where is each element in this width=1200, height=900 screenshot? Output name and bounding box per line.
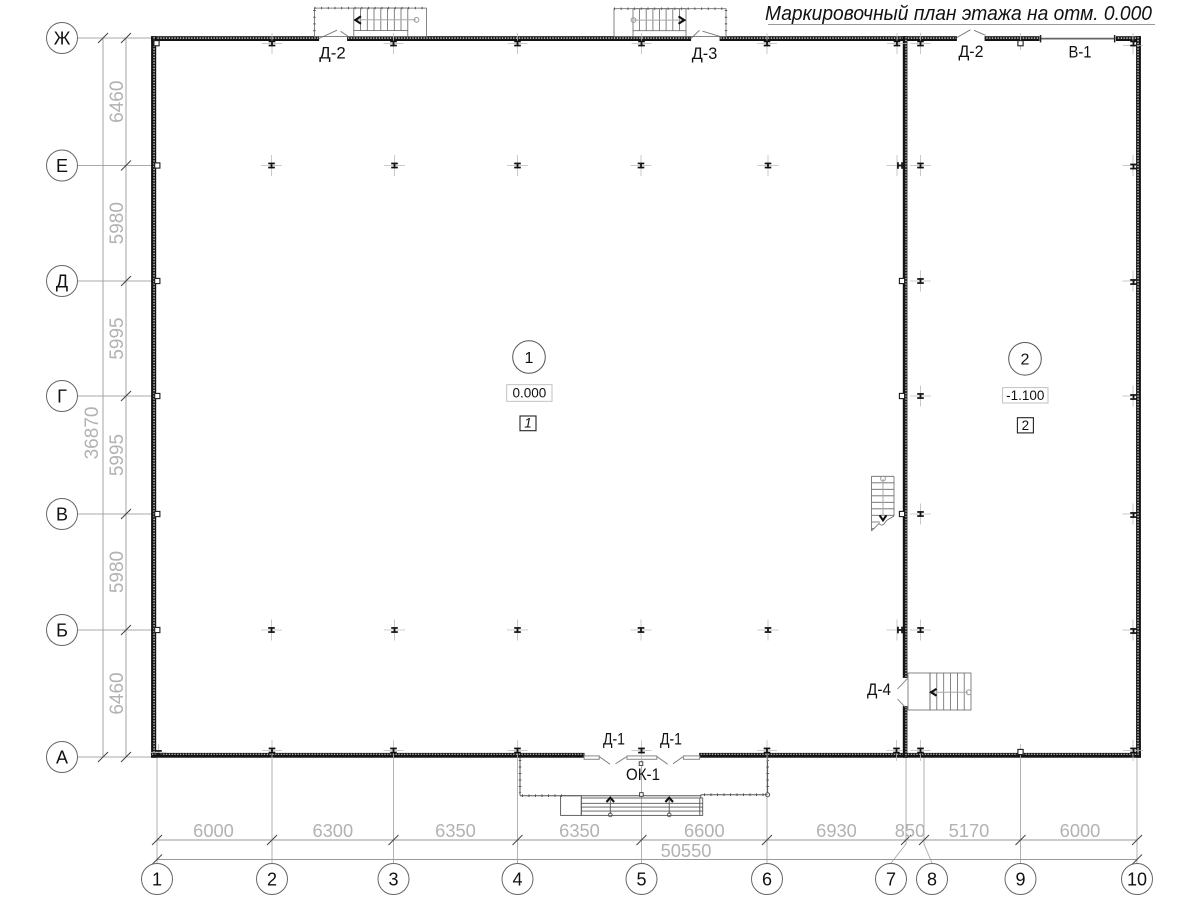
svg-text:5980: 5980 [107,551,128,593]
svg-text:6000: 6000 [1060,820,1101,841]
svg-text:3: 3 [388,870,398,890]
svg-text:Г: Г [57,387,67,407]
svg-text:-1.100: -1.100 [1006,388,1044,403]
svg-text:Б: Б [56,621,68,641]
svg-text:6930: 6930 [816,820,857,841]
svg-text:6000: 6000 [193,820,234,841]
svg-text:ОК-1: ОК-1 [626,765,660,784]
svg-text:850: 850 [895,820,926,841]
svg-text:Д-2: Д-2 [959,43,984,61]
svg-text:5995: 5995 [107,434,128,476]
svg-text:Д: Д [56,272,68,292]
svg-text:Е: Е [56,156,68,176]
svg-text:5980: 5980 [107,202,128,244]
svg-text:Д-3: Д-3 [692,44,718,63]
svg-text:5170: 5170 [949,820,990,841]
svg-text:0.000: 0.000 [513,386,547,401]
svg-text:6350: 6350 [435,820,476,841]
svg-text:8: 8 [927,870,937,890]
svg-text:36870: 36870 [82,407,103,460]
svg-text:5995: 5995 [107,317,128,359]
svg-text:6300: 6300 [312,820,353,841]
svg-text:9: 9 [1015,870,1025,890]
svg-text:2: 2 [1021,352,1030,369]
svg-text:4: 4 [512,870,522,890]
svg-text:В: В [56,505,68,525]
svg-text:5: 5 [636,870,646,890]
svg-text:6460: 6460 [107,672,128,714]
svg-text:Маркировочный план этажа на от: Маркировочный план этажа на отм. 0.000 [765,2,1153,25]
svg-text:10: 10 [1127,870,1147,890]
svg-text:1: 1 [524,416,532,431]
svg-text:50550: 50550 [661,840,712,861]
svg-text:6460: 6460 [107,81,128,123]
svg-text:1: 1 [152,870,162,890]
svg-text:1: 1 [525,350,534,367]
svg-text:2: 2 [267,870,277,890]
svg-text:6600: 6600 [684,820,725,841]
svg-text:Д-1: Д-1 [660,731,682,749]
svg-text:6: 6 [762,870,772,890]
svg-text:6350: 6350 [559,820,600,841]
svg-text:Д-2: Д-2 [319,44,345,63]
svg-text:2: 2 [1022,418,1030,433]
svg-text:Ж: Ж [54,29,71,49]
svg-text:Д-4: Д-4 [867,681,891,699]
svg-text:А: А [56,748,68,768]
svg-text:Д-1: Д-1 [603,731,625,749]
svg-text:7: 7 [886,870,896,890]
svg-text:В-1: В-1 [1069,44,1092,62]
